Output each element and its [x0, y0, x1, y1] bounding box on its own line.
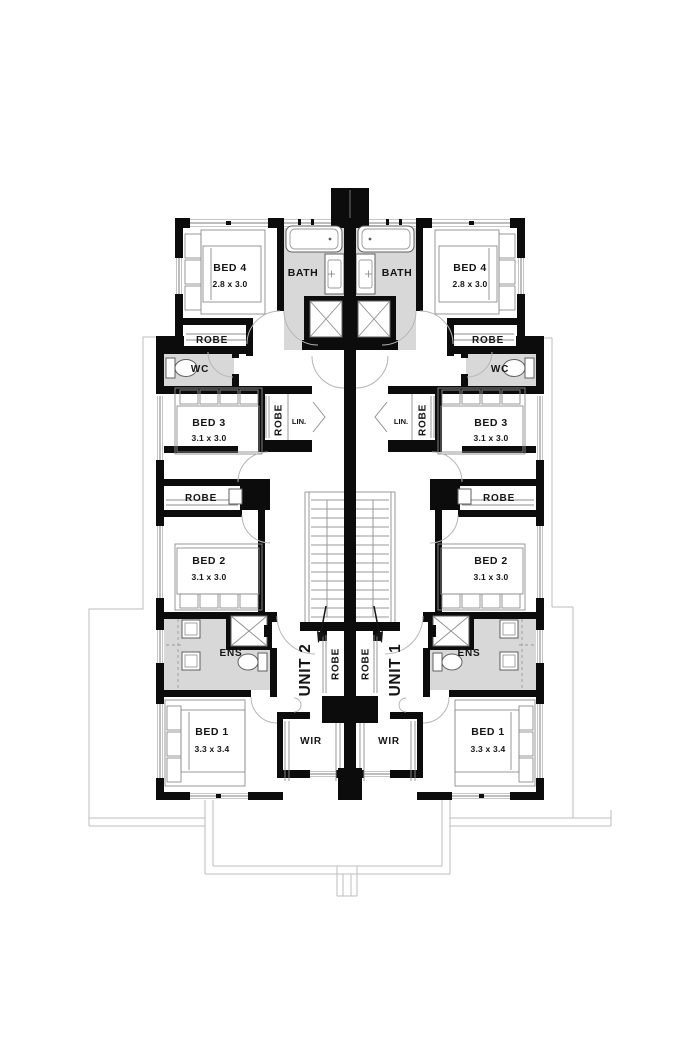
- label-unit1-robe-bed4: ROBE: [472, 335, 504, 346]
- label-unit2: UNIT 2: [297, 644, 314, 697]
- label-unit2-bed2: BED 2: [192, 555, 225, 567]
- room-unit2-bath: [284, 222, 344, 350]
- label-unit1-robe-bed3: ROBE: [418, 404, 429, 436]
- label-unit2-bath: BATH: [288, 267, 318, 279]
- label-unit1-bed3: BED 3: [474, 417, 507, 429]
- room-unit1-bath: [356, 222, 416, 350]
- label-unit1-bed3-dims: 3.1 x 3.0: [474, 433, 509, 443]
- label-unit2-robe-bed3: ROBE: [274, 404, 285, 436]
- room-unit1-ens: [430, 619, 536, 690]
- label-unit2-robe-hall: ROBE: [331, 648, 342, 680]
- label-unit1-robe-bed2: ROBE: [483, 493, 515, 504]
- label-unit1-robe-hall: ROBE: [361, 648, 372, 680]
- label-unit2-bed4-dims: 2.8 x 3.0: [213, 279, 248, 289]
- label-unit1-bed4: BED 4: [453, 262, 486, 274]
- room-unit1-bed4: [423, 228, 517, 320]
- label-unit2-bed3: BED 3: [192, 417, 225, 429]
- label-unit2-wir: WIR: [300, 736, 322, 747]
- label-unit1-bed2-dims: 3.1 x 3.0: [474, 572, 509, 582]
- label-unit2-bed1-dims: 3.3 x 3.4: [195, 744, 230, 754]
- label-unit1-wir: WIR: [378, 736, 400, 747]
- label-unit1-wc: WC: [491, 364, 509, 375]
- label-unit2-robe-bed2: ROBE: [185, 493, 217, 504]
- label-unit1-bed1-dims: 3.3 x 3.4: [471, 744, 506, 754]
- label-unit2-bed2-dims: 3.1 x 3.0: [192, 572, 227, 582]
- label-unit1-bed2: BED 2: [474, 555, 507, 567]
- label-unit2-robe-bed4: ROBE: [196, 335, 228, 346]
- label-unit1-bed1: BED 1: [471, 726, 504, 738]
- label-unit1-ens: ENS: [458, 648, 481, 659]
- label-unit2-bed3-dims: 3.1 x 3.0: [192, 433, 227, 443]
- label-unit1: UNIT 1: [387, 644, 404, 697]
- room-unit2-ens: [164, 619, 270, 690]
- room-unit2-wir: [283, 719, 344, 783]
- floor-plan-page: BED 4 2.8 x 3.0 BATH ROBE WC BED 3 3.1 x…: [0, 0, 700, 1045]
- label-unit1-bath: BATH: [382, 267, 412, 279]
- room-unit2-bed4: [183, 228, 277, 320]
- room-unit1-wir: [356, 719, 417, 783]
- label-unit2-bed1: BED 1: [195, 726, 228, 738]
- label-unit2-wc: WC: [191, 364, 209, 375]
- label-unit2-ens: ENS: [220, 648, 243, 659]
- label-unit2-bed4: BED 4: [213, 262, 246, 274]
- label-unit1-bed4-dims: 2.8 x 3.0: [453, 279, 488, 289]
- label-unit2-linen: LIN.: [292, 417, 306, 426]
- label-unit1-linen: LIN.: [394, 417, 408, 426]
- floor-plan: BED 4 2.8 x 3.0 BATH ROBE WC BED 3 3.1 x…: [0, 0, 700, 1045]
